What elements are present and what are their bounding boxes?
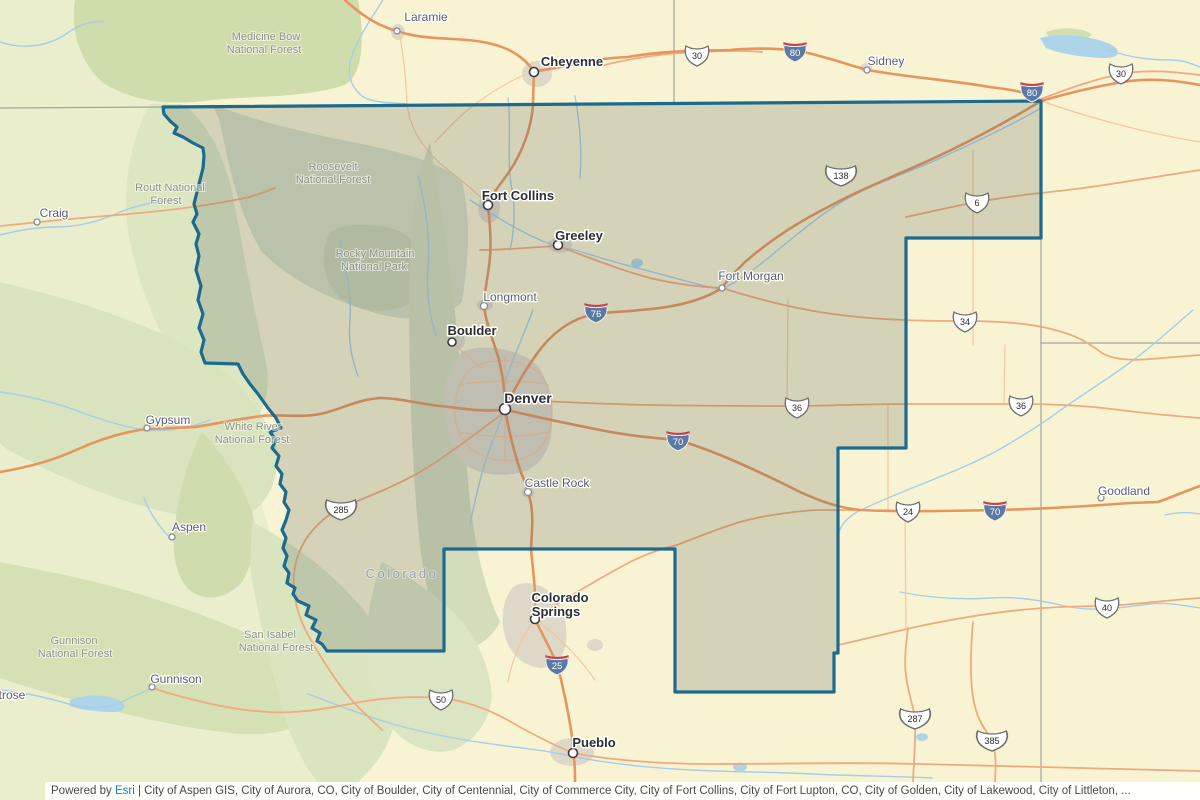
shield-label: 6	[974, 198, 979, 208]
shield-label: 50	[436, 695, 446, 705]
shield-label: 138	[833, 171, 848, 181]
esri-link[interactable]: Esri	[115, 785, 135, 797]
shield-label: 34	[960, 317, 970, 327]
city-label: Sidney	[868, 54, 905, 68]
pond-2	[916, 733, 928, 741]
city-label: Longmont	[483, 290, 537, 304]
forest-label: Forest	[150, 195, 181, 207]
attribution-sources: City of Aspen GIS, City of Aurora, CO, C…	[144, 785, 1131, 797]
attribution-separator: |	[138, 785, 141, 797]
map-canvas[interactable]: Medicine Bow National Forest Routt Natio…	[0, 0, 1200, 800]
shield-label: 287	[907, 714, 922, 724]
urban-cs-east	[587, 639, 603, 651]
shield-label: 285	[333, 505, 348, 515]
forest-label: National Park	[341, 261, 408, 273]
city-label: Fort Morgan	[718, 269, 783, 283]
shield-label: 70	[990, 507, 1001, 518]
shield-label: 36	[1016, 401, 1026, 411]
forest-label: National Forest	[215, 434, 290, 446]
shield-label: 24	[903, 507, 913, 517]
forest-label: National Forest	[227, 44, 302, 56]
shield-label: 40	[1102, 603, 1112, 613]
state-label: Colorado	[366, 566, 439, 581]
city-marker	[719, 285, 725, 291]
forest-label: San Isabel	[244, 629, 296, 641]
city-label: Gunnison	[150, 672, 201, 686]
city-marker	[448, 338, 456, 346]
shield-label: 80	[1027, 88, 1038, 99]
city-label: Laramie	[404, 10, 448, 24]
shield-label: 70	[673, 437, 684, 448]
city-label: Boulder	[447, 323, 496, 338]
forest-medicine-bow	[74, 0, 362, 103]
map-tiles: Medicine Bow National Forest Routt Natio…	[0, 0, 1200, 800]
city-marker	[394, 28, 400, 34]
city-label: Castle Rock	[525, 476, 591, 490]
city-marker	[169, 534, 175, 540]
city-marker	[530, 68, 539, 77]
city-label: Aspen	[172, 520, 206, 534]
city-label: Goodland	[1098, 484, 1150, 498]
city-label-partial: trose	[0, 688, 26, 702]
city-label: Cheyenne	[541, 54, 603, 69]
forest-label: Gunnison	[50, 635, 97, 647]
city-label: Greeley	[555, 228, 603, 243]
shield-label: 385	[984, 736, 999, 746]
forest-label: Rocky Mountain	[336, 248, 415, 260]
forest-label: Medicine Bow	[232, 31, 301, 43]
forest-label: Roosevelt	[309, 161, 358, 173]
city-label: Springs	[532, 604, 580, 619]
forest-label: National Forest	[38, 648, 113, 660]
city-label: Pueblo	[572, 735, 615, 750]
shield-label: 36	[792, 403, 802, 413]
shield-label: 25	[552, 661, 563, 672]
forest-label: National Forest	[239, 642, 314, 654]
forest-label: White River	[225, 421, 282, 433]
forest-label: Routt National	[135, 182, 205, 194]
city-label: Craig	[40, 206, 69, 220]
city-label: Fort Collins	[482, 188, 554, 203]
city-label: Gypsum	[146, 413, 191, 427]
attribution-bar: Powered by Esri | City of Aspen GIS, Cit…	[45, 782, 1200, 800]
forest-label: National Forest	[296, 174, 371, 186]
city-label: Colorado	[531, 590, 588, 605]
shield-label: 76	[591, 309, 602, 320]
shield-label: 80	[790, 48, 801, 59]
city-label: Denver	[504, 390, 552, 406]
shield-label: 30	[692, 51, 702, 61]
powered-by-text: Powered by	[51, 785, 112, 797]
shield-label: 30	[1116, 69, 1126, 79]
